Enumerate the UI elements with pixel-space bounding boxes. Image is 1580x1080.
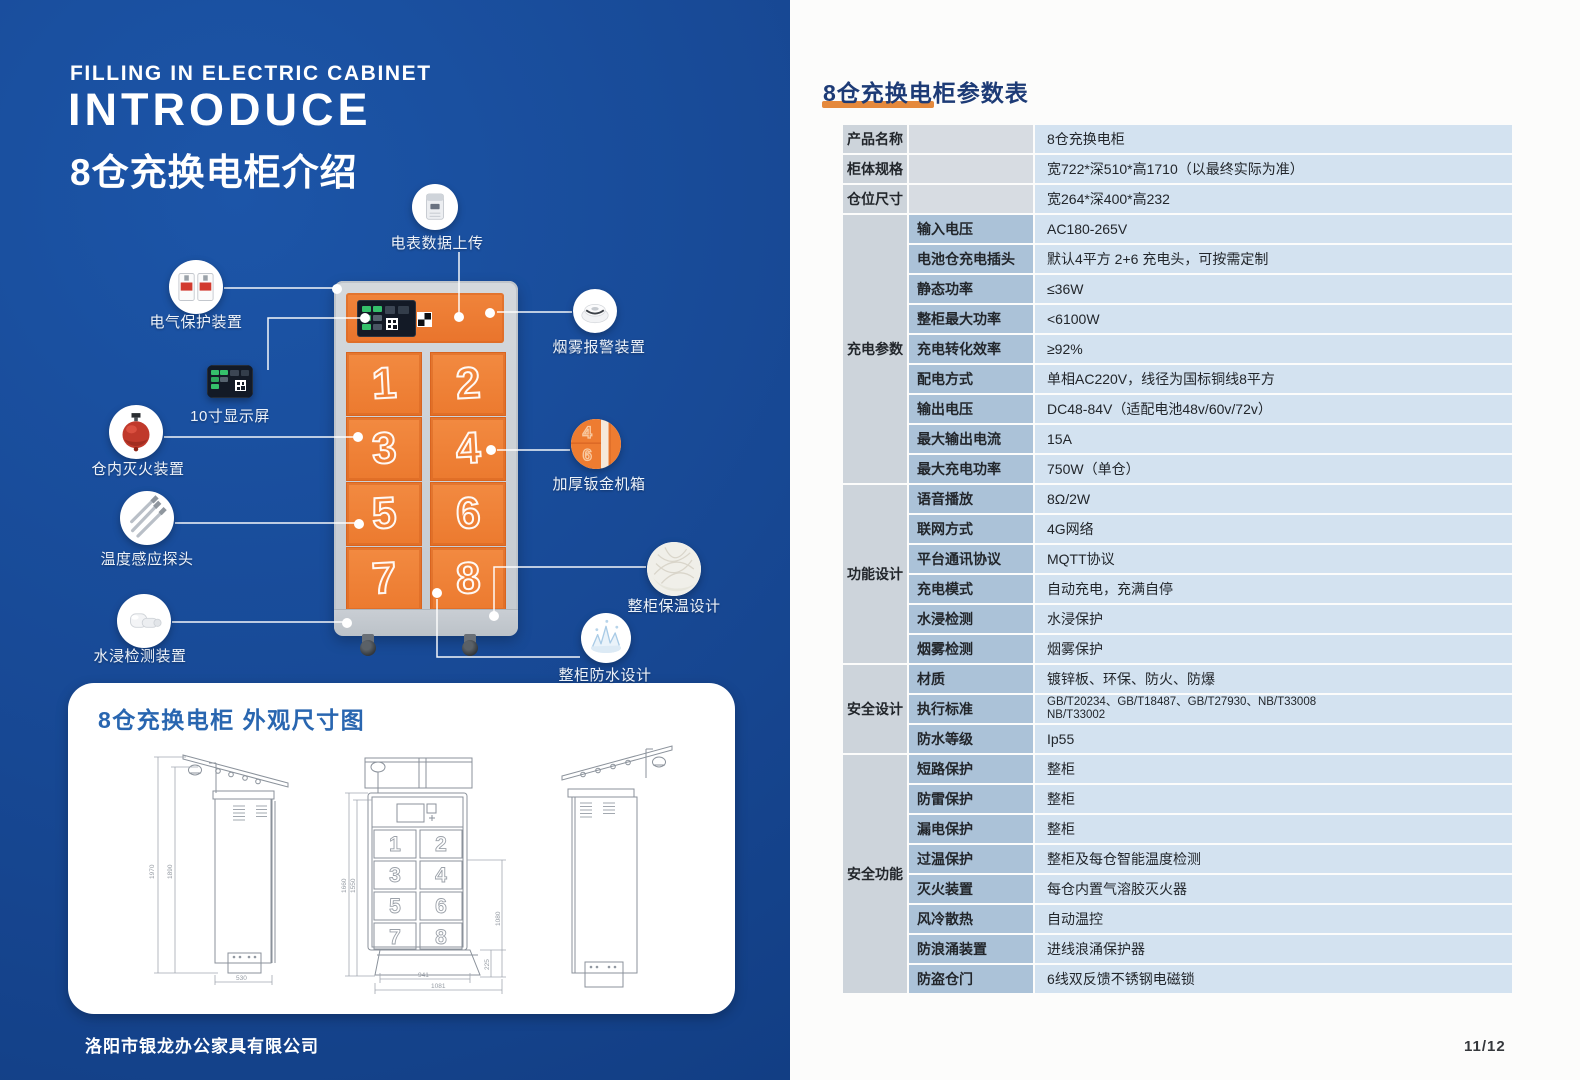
spec-value: 自动充电，充满自停 <box>1035 575 1512 603</box>
drawing-door-digit: 5 <box>389 895 401 918</box>
spec-value: 单相AC220V，线径为国标铜线8平方 <box>1035 365 1512 393</box>
spec-label: 输入电压 <box>909 215 1033 243</box>
table-row: 电池仓充电插头默认4平方 2+6 充电头，可按需定制 <box>909 245 1512 273</box>
spec-label: 配电方式 <box>909 365 1033 393</box>
table-row: 输出电压DC48-84V（适配电池48v/60v/72v） <box>909 395 1512 423</box>
spec-value: MQTT协议 <box>1035 545 1512 573</box>
table-row: 产品名称8仓充换电柜 <box>843 125 1512 153</box>
spec-table: 产品名称8仓充换电柜柜体规格宽722*深510*高1710（以最终实际为准）仓位… <box>843 125 1512 995</box>
table-section-充电参数: 充电参数输入电压AC180-265V电池仓充电插头默认4平方 2+6 充电头，可… <box>843 215 1512 483</box>
spec-label: 防雷保护 <box>909 785 1033 813</box>
spec-label: 语音播放 <box>909 485 1033 513</box>
spec-group-label: 安全设计 <box>843 665 907 753</box>
spec-value: GB/T20234、GB/T18487、GB/T27930、NB/T33008N… <box>1035 695 1512 723</box>
drawing-door-digit: 1 <box>389 833 401 856</box>
electrical-protection-icon <box>169 260 223 314</box>
table-row: 最大充电功率750W（单仓） <box>909 455 1512 483</box>
spec-label: 产品名称 <box>843 125 907 153</box>
waterproof-design-label: 整柜防水设计 <box>520 664 690 685</box>
spec-label: 过温保护 <box>909 845 1033 873</box>
spec-label: 最大充电功率 <box>909 455 1033 483</box>
table-row: 漏电保护整柜 <box>909 815 1512 843</box>
spec-label: 防浪涌装置 <box>909 935 1033 963</box>
insulation-design-label: 整柜保温设计 <box>589 595 759 616</box>
spec-value: Ip55 <box>1035 725 1512 753</box>
caster-wheel-icon <box>356 634 380 658</box>
smoke-alarm-label: 烟雾报警装置 <box>514 336 684 357</box>
spec-group-label: 充电参数 <box>843 215 907 483</box>
dim-front-width-outer: 1081 <box>431 983 446 990</box>
fire-extinguisher-icon <box>109 405 163 459</box>
table-row: 防雷保护整柜 <box>909 785 1512 813</box>
table-row: 灭火装置每仓内置气溶胶灭火器 <box>909 875 1512 903</box>
table-row: 充电转化效率≥92% <box>909 335 1512 363</box>
spec-value: 宽264*深400*高232 <box>1035 185 1512 213</box>
meter-upload-label: 电表数据上传 <box>352 232 522 253</box>
spec-label: 输出电压 <box>909 395 1033 423</box>
spec-label: 充电转化效率 <box>909 335 1033 363</box>
waterproof-design-icon <box>581 613 631 663</box>
spec-value: 烟雾保护 <box>1035 635 1512 663</box>
dim-side-height-outer: 1970 <box>149 864 156 879</box>
table-row: 执行标准GB/T20234、GB/T18487、GB/T27930、NB/T33… <box>909 695 1512 723</box>
cabinet-door-8: 8 <box>430 547 506 611</box>
table-section-功能设计: 功能设计语音播放8Ω/2W联网方式4G网络平台通讯协议MQTT协议充电模式自动充… <box>843 485 1512 663</box>
spec-label: 静态功率 <box>909 275 1033 303</box>
electrical-protection-label: 电气保护装置 <box>111 311 281 332</box>
spec-label: 短路保护 <box>909 755 1033 783</box>
cabinet-door-6: 6 <box>430 482 506 546</box>
spec-label: 材质 <box>909 665 1033 693</box>
qr-code-icon <box>417 312 432 327</box>
dim-side-height-inner: 1890 <box>167 864 174 879</box>
title-en: INTRODUCE <box>68 84 548 136</box>
table-section-安全功能: 安全功能短路保护整柜防雷保护整柜漏电保护整柜过温保护整柜及每仓智能温度检测灭火装… <box>843 755 1512 993</box>
table-row: 柜体规格宽722*深510*高1710（以最终实际为准） <box>843 155 1512 183</box>
table-row: 充电模式自动充电，充满自停 <box>909 575 1512 603</box>
drawing-door-digit: 2 <box>435 833 447 856</box>
cabinet-door-5: 5 <box>346 482 422 546</box>
dim-front-width-inner: 941 <box>418 972 429 979</box>
spec-value: ≥92% <box>1035 335 1512 363</box>
table-row: 语音播放8Ω/2W <box>909 485 1512 513</box>
spec-panel: 8仓充换电柜参数表 产品名称8仓充换电柜柜体规格宽722*深510*高1710（… <box>790 0 1580 1080</box>
insulation-design-icon <box>647 542 701 596</box>
sheet-metal-case-icon: 46 <box>571 419 621 469</box>
spec-spacer <box>909 185 1033 213</box>
svg-text:4: 4 <box>583 423 593 442</box>
caster-wheel-icon <box>458 634 482 658</box>
table-row: 烟雾检测烟雾保护 <box>909 635 1512 663</box>
cabinet-door-4: 4 <box>430 417 506 481</box>
temperature-probe-icon <box>120 491 174 545</box>
spec-value: AC180-265V <box>1035 215 1512 243</box>
dimension-card: 8仓充换电柜 外观尺寸图 <box>68 683 735 1014</box>
spec-label: 防水等级 <box>909 725 1033 753</box>
subtitle-en: FILLING IN ELECTRIC CABINET <box>70 62 490 86</box>
smoke-alarm-icon <box>573 289 617 333</box>
spec-value: 每仓内置气溶胶灭火器 <box>1035 875 1512 903</box>
spec-spacer <box>909 155 1033 183</box>
spec-value: ≤36W <box>1035 275 1512 303</box>
spec-table-title: 8仓充换电柜参数表 <box>823 74 1029 108</box>
spec-value: 8仓充换电柜 <box>1035 125 1512 153</box>
display-screen-icon <box>207 365 253 398</box>
dim-front-base-height: 225 <box>484 959 491 970</box>
table-row: 材质镀锌板、环保、防火、防爆 <box>909 665 1512 693</box>
table-row: 输入电压AC180-265V <box>909 215 1512 243</box>
spec-label: 烟雾检测 <box>909 635 1033 663</box>
table-row: 最大输出电流15A <box>909 425 1512 453</box>
spec-value: 6线双反馈不锈钢电磁锁 <box>1035 965 1512 993</box>
spec-value: 水浸保护 <box>1035 605 1512 633</box>
cabinet-base <box>334 609 518 636</box>
drawing-door-digit: 6 <box>435 895 447 918</box>
spec-group-label: 功能设计 <box>843 485 907 663</box>
spec-value: 8Ω/2W <box>1035 485 1512 513</box>
spec-label: 平台通讯协议 <box>909 545 1033 573</box>
spec-label: 执行标准 <box>909 695 1033 723</box>
table-row: 短路保护整柜 <box>909 755 1512 783</box>
table-row: 防盗仓门6线双反馈不锈钢电磁锁 <box>909 965 1512 993</box>
drawing-door-digit: 8 <box>435 926 447 949</box>
table-row: 联网方式4G网络 <box>909 515 1512 543</box>
spec-label: 风冷散热 <box>909 905 1033 933</box>
screen-content-icon <box>358 301 415 336</box>
spec-label: 仓位尺寸 <box>843 185 907 213</box>
dim-front-height-outer: 1660 <box>341 878 348 893</box>
spec-label: 联网方式 <box>909 515 1033 543</box>
spec-value: 750W（单仓） <box>1035 455 1512 483</box>
cabinet-door-1: 1 <box>346 352 422 416</box>
spec-value: 整柜 <box>1035 755 1512 783</box>
table-row: 过温保护整柜及每仓智能温度检测 <box>909 845 1512 873</box>
drawing-door-digit: 7 <box>389 926 401 949</box>
spec-label: 防盗仓门 <box>909 965 1033 993</box>
spec-value: 整柜 <box>1035 785 1512 813</box>
page-number: 11/12 <box>1464 1038 1506 1055</box>
cabinet-door-3: 3 <box>346 417 422 481</box>
brochure-page: FILLING IN ELECTRIC CABINET INTRODUCE 8仓… <box>0 0 1580 1080</box>
spec-value: 镀锌板、环保、防火、防爆 <box>1035 665 1512 693</box>
table-row: 仓位尺寸宽264*深400*高232 <box>843 185 1512 213</box>
dim-front-right-height: 1080 <box>495 911 502 926</box>
spec-value: DC48-84V（适配电池48v/60v/72v） <box>1035 395 1512 423</box>
spec-value: 默认4平方 2+6 充电头，可按需定制 <box>1035 245 1512 273</box>
water-detection-label: 水浸检测装置 <box>55 645 225 666</box>
sheet-metal-case-label: 加厚钣金机箱 <box>514 473 684 494</box>
table-section-安全设计: 安全设计材质镀锌板、环保、防火、防爆执行标准GB/T20234、GB/T1848… <box>843 665 1512 753</box>
spec-value: 宽722*深510*高1710（以最终实际为准） <box>1035 155 1512 183</box>
spec-group-label: 安全功能 <box>843 755 907 993</box>
cabinet-door-2: 2 <box>430 352 506 416</box>
company-name: 洛阳市银龙办公家具有限公司 <box>85 1032 319 1057</box>
spec-spacer <box>909 125 1033 153</box>
intro-panel: FILLING IN ELECTRIC CABINET INTRODUCE 8仓… <box>0 0 790 1080</box>
temperature-probe-label: 温度感应探头 <box>62 548 232 569</box>
table-row: 配电方式单相AC220V，线径为国标铜线8平方 <box>909 365 1512 393</box>
table-row: 静态功率≤36W <box>909 275 1512 303</box>
dim-side-depth: 530 <box>236 975 247 982</box>
svg-text:6: 6 <box>583 446 592 465</box>
dim-front-height-inner: 1550 <box>350 878 357 893</box>
spec-value: 15A <box>1035 425 1512 453</box>
table-row: 防水等级Ip55 <box>909 725 1512 753</box>
cabinet-door-7: 7 <box>346 547 422 611</box>
spec-value: 整柜及每仓智能温度检测 <box>1035 845 1512 873</box>
table-row: 水浸检测水浸保护 <box>909 605 1512 633</box>
dimension-card-title: 8仓充换电柜 外观尺寸图 <box>98 701 365 735</box>
drawing-door-digit: 3 <box>389 864 401 887</box>
table-row: 风冷散热自动温控 <box>909 905 1512 933</box>
title-cn: 8仓充换电柜介绍 <box>70 142 550 196</box>
spec-value: <6100W <box>1035 305 1512 333</box>
cabinet-display-screen <box>357 300 416 337</box>
table-row: 整柜最大功率<6100W <box>909 305 1512 333</box>
spec-label: 充电模式 <box>909 575 1033 603</box>
meter-upload-icon <box>412 184 458 230</box>
spec-label: 灭火装置 <box>909 875 1033 903</box>
drawing-door-digit: 4 <box>435 864 447 887</box>
spec-value: 进线浪涌保护器 <box>1035 935 1512 963</box>
fire-extinguisher-label: 仓内灭火装置 <box>53 458 223 479</box>
display-screen-label: 10寸显示屏 <box>145 405 315 426</box>
spec-label: 整柜最大功率 <box>909 305 1033 333</box>
spec-label: 最大输出电流 <box>909 425 1033 453</box>
spec-value: 自动温控 <box>1035 905 1512 933</box>
spec-label: 漏电保护 <box>909 815 1033 843</box>
table-row: 防浪涌装置进线浪涌保护器 <box>909 935 1512 963</box>
table-row: 平台通讯协议MQTT协议 <box>909 545 1512 573</box>
spec-value: 4G网络 <box>1035 515 1512 543</box>
spec-label: 水浸检测 <box>909 605 1033 633</box>
spec-label: 柜体规格 <box>843 155 907 183</box>
spec-label: 电池仓充电插头 <box>909 245 1033 273</box>
water-detection-icon <box>117 594 171 648</box>
spec-value: 整柜 <box>1035 815 1512 843</box>
